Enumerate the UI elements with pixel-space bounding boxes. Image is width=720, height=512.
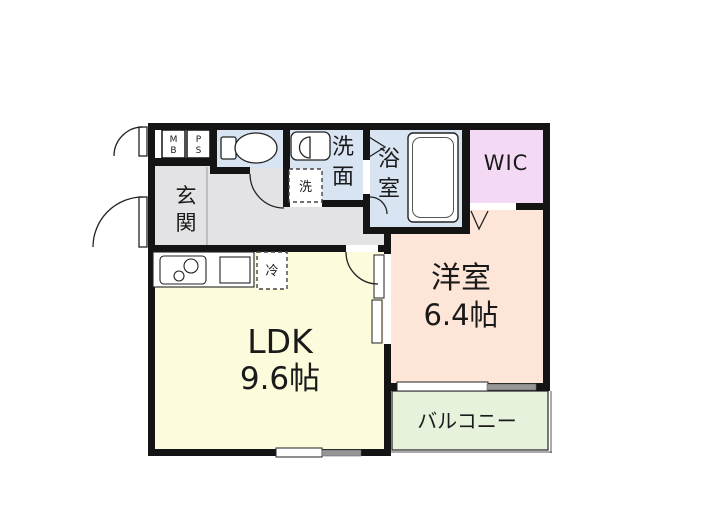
stove-burner-small — [174, 271, 184, 281]
entrance-door-arc — [93, 197, 143, 247]
wall-top — [148, 123, 550, 130]
ldk-size: 9.6帖 — [240, 361, 320, 397]
wall-bath-bottom — [363, 227, 470, 234]
pipe-space-label-s: S — [196, 146, 202, 156]
senmen-label-2: 面 — [332, 165, 354, 190]
floorplan-page: M B P S 洗 — [0, 0, 720, 512]
kitchen-sink-icon — [220, 257, 250, 283]
toilet-icon — [221, 133, 277, 163]
wall-toilet-bottom — [210, 167, 250, 174]
floorplan-canvas: M B P S 洗 — [0, 0, 720, 512]
refrigerator-label: 冷 — [265, 264, 278, 279]
bath-door-opening — [363, 160, 370, 194]
senmen-label-1: 洗 — [332, 135, 354, 160]
pipe-space-label-p: P — [196, 135, 202, 145]
wall-mbps-bottom — [155, 158, 217, 166]
balcony-window-pane-2 — [487, 384, 536, 390]
bathtub-outer — [408, 133, 458, 222]
ldk-label: LDK — [247, 322, 314, 361]
bath-label-2: 室 — [378, 177, 400, 202]
service-boxes: M B P S — [162, 130, 210, 158]
toilet-tank — [221, 137, 236, 159]
ldk-window-pane — [276, 448, 322, 457]
western-room-floor — [391, 210, 543, 384]
ldk-window-pane-2 — [322, 450, 361, 456]
washing-machine-label: 洗 — [299, 180, 312, 195]
sink-icon — [291, 132, 330, 160]
toilet-bowl — [235, 133, 277, 163]
wic-label: WIC — [484, 151, 529, 175]
bath-label-1: 浴 — [378, 147, 400, 172]
sliding-door-panel-1 — [374, 255, 384, 298]
wall-bath-wic — [462, 123, 470, 227]
western-room-size: 6.4帖 — [423, 298, 498, 332]
genkan-label-2: 関 — [176, 211, 197, 235]
bathtub-icon — [408, 133, 458, 222]
washing-machine-space: 洗 — [289, 169, 322, 202]
wic-opening — [470, 203, 516, 210]
slider-opening — [384, 254, 391, 344]
western-room-label: 洋室 — [431, 261, 491, 296]
ldk-door-opening — [346, 245, 378, 252]
wall-right — [543, 123, 550, 391]
entrance-door-leaf — [139, 197, 147, 247]
genkan-label-1: 玄 — [176, 184, 197, 208]
stove-burner-large — [184, 259, 198, 273]
meter-box-label-m: M — [170, 135, 178, 145]
refrigerator-space: 冷 — [257, 252, 287, 289]
meter-box-door-leaf — [139, 127, 147, 156]
balcony-window-pane — [397, 382, 488, 391]
wall-left — [148, 123, 155, 456]
balcony-label: バルコニー — [417, 409, 517, 433]
meter-box-label-b: B — [170, 146, 176, 156]
kitchen-counter — [153, 252, 254, 287]
wall-toilet-left — [210, 123, 217, 174]
sliding-door-panel-2 — [372, 300, 382, 343]
